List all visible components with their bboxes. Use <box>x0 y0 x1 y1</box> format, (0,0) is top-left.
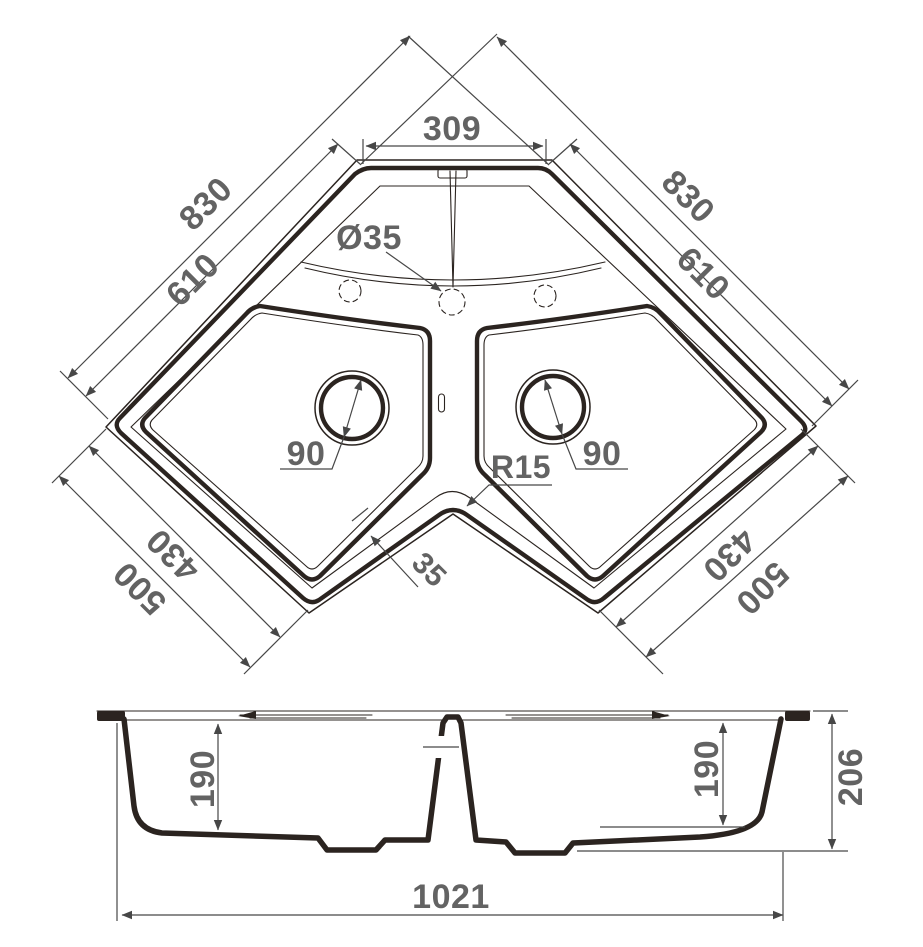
label-side-total-right: 830 <box>654 163 722 231</box>
sink-outer-edge <box>106 160 816 613</box>
dimline-500-left <box>59 476 250 667</box>
ext-430-500-right-top <box>801 429 855 483</box>
divider-slot <box>439 394 445 412</box>
ext-430-500-left-top <box>52 429 106 483</box>
dia-arrow-drain-left <box>344 380 361 437</box>
rim-end-cap-left <box>97 711 125 721</box>
overflow-slot <box>438 169 467 178</box>
center-crease <box>450 171 456 287</box>
section-view: 190 190 206 1021 <box>97 711 870 921</box>
drain-left-inner <box>321 377 383 439</box>
label-bowl-depth-left: 190 <box>184 750 222 808</box>
drain-left-outer <box>315 371 389 445</box>
label-overall-height: 206 <box>832 748 870 806</box>
ext-left-corner-up <box>60 371 108 419</box>
ext-610-right-top <box>549 139 577 164</box>
leader-corner-radius <box>467 485 552 506</box>
faucet-hole-right <box>534 285 556 307</box>
ext-right-corner-up <box>812 380 858 426</box>
label-corner-radius: R15 <box>491 449 551 485</box>
label-top-width: 309 <box>423 110 481 148</box>
section-body-profile <box>124 717 781 853</box>
label-drain-right: 90 <box>583 435 622 473</box>
label-drain-left: 90 <box>287 435 326 473</box>
ext-430-500-left-bottom <box>244 610 308 674</box>
label-rim-width: 35 <box>405 546 453 594</box>
plan-view: 309 830 610 830 610 430 500 430 500 Ø35 … <box>52 34 858 674</box>
rim-end-cap-right <box>785 711 810 721</box>
technical-drawing-page: 309 830 610 830 610 430 500 430 500 Ø35 … <box>0 0 923 947</box>
label-side-bowl-left: 610 <box>159 246 227 314</box>
dia-arrow-drain-right <box>545 380 562 434</box>
ext-610-left-top <box>332 139 360 164</box>
ext-430-500-right-bottom <box>599 610 663 674</box>
faucet-hole-left <box>339 280 361 302</box>
faucet-hole-center <box>439 289 465 315</box>
label-overall-width: 1021 <box>412 878 490 916</box>
label-side-total-left: 830 <box>172 170 240 238</box>
sink-dimensional-drawing: 309 830 610 830 610 430 500 430 500 Ø35 … <box>0 0 923 947</box>
label-bowl-depth-right: 190 <box>688 740 726 798</box>
dimline-500-right <box>646 476 848 657</box>
sink-main-outline <box>117 168 806 602</box>
label-faucet-hole-diameter: Ø35 <box>336 219 402 257</box>
